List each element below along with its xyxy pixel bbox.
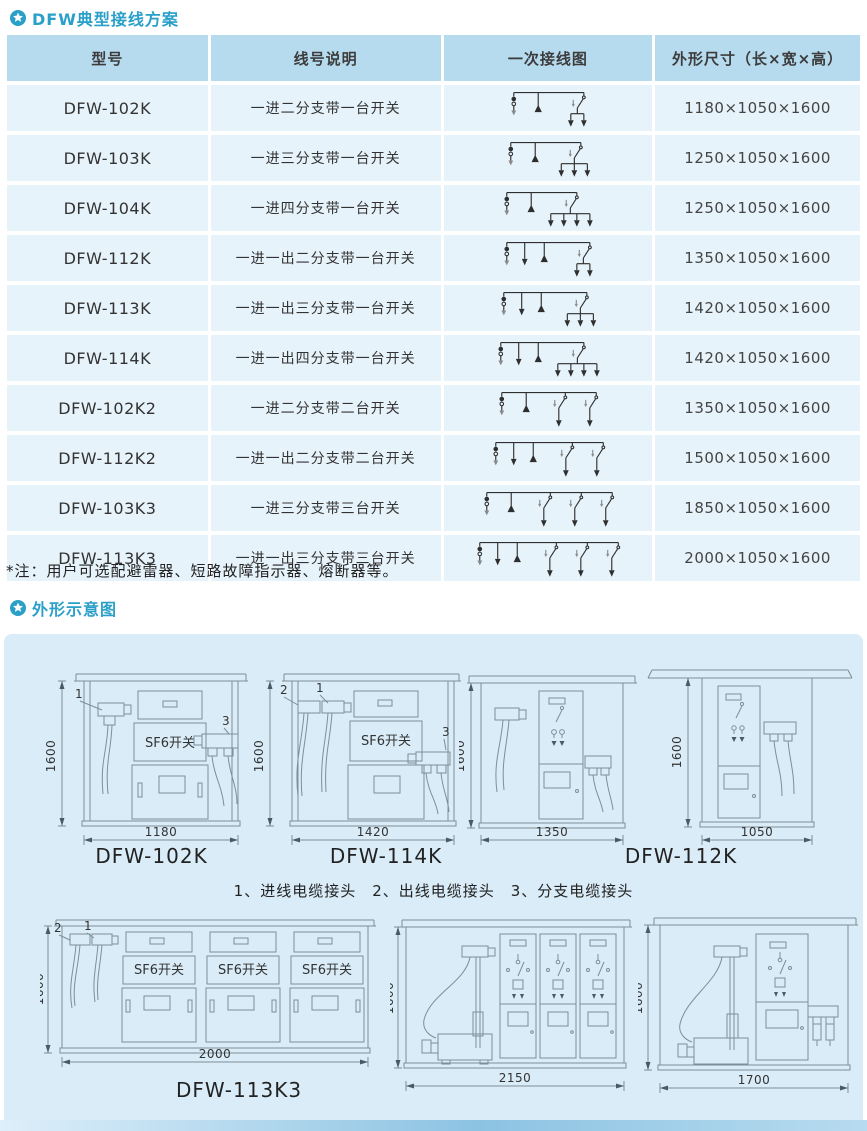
footnote: *注：用户可选配避雷器、短路故障指示器、熔断器等。 bbox=[6, 560, 399, 581]
diagram-cell bbox=[444, 385, 653, 431]
header-description: 线号说明 bbox=[211, 35, 441, 81]
callout-1: 1 bbox=[316, 681, 324, 695]
table-row: DFW-114K一进一出四分支带一台开关1420×1050×1600 bbox=[7, 335, 860, 381]
outline-drawings-panel: SF6开关 1 3 1600 1180 DFW-102K SF6开关 2 1 bbox=[4, 634, 863, 1131]
model-cell: DFW-114K bbox=[7, 335, 208, 381]
section-title-text: 外形示意图 bbox=[32, 596, 117, 620]
model-cell: DFW-112K2 bbox=[7, 435, 208, 481]
diagram-cell bbox=[444, 435, 653, 481]
callout-3: 3 bbox=[442, 725, 450, 739]
header-model: 型号 bbox=[7, 35, 208, 81]
svg-text:SF6开关: SF6开关 bbox=[134, 963, 184, 978]
dimensions-cell: 1500×1050×1600 bbox=[655, 435, 860, 481]
spec-table: 型号 线号说明 一次接线图 外形尺寸（长×宽×高） DFW-102K一进二分支带… bbox=[4, 31, 863, 585]
description-cell: 一进三分支带一台开关 bbox=[211, 135, 441, 181]
callout-3: 3 bbox=[222, 714, 230, 728]
svg-text:SF6开关: SF6开关 bbox=[145, 736, 195, 751]
drawing-caption-dfw-113k3: DFW-113K3 bbox=[114, 1078, 364, 1102]
header-diagram: 一次接线图 bbox=[444, 35, 653, 81]
height-dimension-label: 1600 bbox=[638, 982, 645, 1015]
width-dimension-label: 2150 bbox=[499, 1071, 532, 1085]
width-dimension-label: 1420 bbox=[357, 825, 390, 839]
callout-1: 1 bbox=[75, 687, 83, 701]
section-title-outline: 外形示意图 bbox=[10, 596, 117, 620]
height-dimension-label: 1600 bbox=[46, 740, 58, 773]
model-cell: DFW-113K bbox=[7, 285, 208, 331]
width-dimension-label: 1350 bbox=[536, 825, 569, 839]
model-cell: DFW-103K3 bbox=[7, 485, 208, 531]
table-row: DFW-102K2一进二分支带二台开关1350×1050×1600 bbox=[7, 385, 860, 431]
dimensions-cell: 1420×1050×1600 bbox=[655, 335, 860, 381]
diagram-cell bbox=[444, 535, 653, 581]
cabinet-drawing-dfw-113k3: 2 1 SF6开关 1600 2000 bbox=[40, 904, 385, 1074]
callout-2: 2 bbox=[280, 683, 288, 697]
one-line-diagram bbox=[501, 136, 596, 180]
drawing-caption-dfw-112k: DFW-112K bbox=[596, 844, 766, 868]
one-line-diagram bbox=[504, 86, 592, 130]
section-star-icon bbox=[10, 600, 26, 616]
description-cell: 一进一出四分支带一台开关 bbox=[211, 335, 441, 381]
drawing-caption-dfw-102k: DFW-102K bbox=[54, 844, 249, 868]
footer-decoration-bar bbox=[0, 1120, 867, 1131]
diagram-cell bbox=[444, 85, 653, 131]
model-cell: DFW-102K2 bbox=[7, 385, 208, 431]
height-dimension-label: 1600 bbox=[252, 740, 266, 773]
description-cell: 一进二分支带二台开关 bbox=[211, 385, 441, 431]
cabinet-drawing-dfw-112k-side: 1600 1050 bbox=[644, 644, 856, 849]
dimensions-cell: 1850×1050×1600 bbox=[655, 485, 860, 531]
one-line-diagram bbox=[492, 386, 603, 430]
cabinet-drawing-dfw-114k: SF6开关 2 1 3 1600 1420 bbox=[252, 644, 467, 850]
table-row: DFW-104K一进四分支带一台开关1250×1050×1600 bbox=[7, 185, 860, 231]
section-star-icon bbox=[10, 10, 26, 26]
cabinet-drawing-dfw-102k: SF6开关 1 3 1600 1180 bbox=[46, 644, 256, 850]
model-cell: DFW-102K bbox=[7, 85, 208, 131]
diagram-cell bbox=[444, 185, 653, 231]
cabinet-drawing-interior-2150: 1600 2150 bbox=[390, 898, 640, 1106]
height-dimension-label: 1600 bbox=[40, 973, 46, 1006]
dimensions-cell: 1180×1050×1600 bbox=[655, 85, 860, 131]
one-line-diagram bbox=[470, 536, 625, 580]
header-dimensions: 外形尺寸（长×宽×高） bbox=[655, 35, 860, 81]
one-line-diagram bbox=[497, 186, 598, 230]
dimensions-cell: 1250×1050×1600 bbox=[655, 135, 860, 181]
description-cell: 一进二分支带一台开关 bbox=[211, 85, 441, 131]
table-row: DFW-112K2一进一出二分支带二台开关1500×1050×1600 bbox=[7, 435, 860, 481]
description-cell: 一进三分支带三台开关 bbox=[211, 485, 441, 531]
height-dimension-label: 1600 bbox=[459, 740, 467, 773]
description-cell: 一进四分支带一台开关 bbox=[211, 185, 441, 231]
drawing-caption-dfw-114k: DFW-114K bbox=[296, 844, 476, 868]
table-row: DFW-112K一进一出二分支带一台开关1350×1050×1600 bbox=[7, 235, 860, 281]
diagram-cell bbox=[444, 335, 653, 381]
cabinet-drawing-dfw-112k-front: 1600 1350 bbox=[459, 646, 644, 851]
table-row: DFW-103K3一进三分支带三台开关1850×1050×1600 bbox=[7, 485, 860, 531]
width-dimension-label: 1180 bbox=[145, 825, 178, 839]
table-row: DFW-113K一进一出三分支带一台开关1420×1050×1600 bbox=[7, 285, 860, 331]
diagram-cell bbox=[444, 135, 653, 181]
callout-2: 2 bbox=[54, 921, 62, 935]
dimensions-cell: 1350×1050×1600 bbox=[655, 385, 860, 431]
height-dimension-label: 1600 bbox=[670, 736, 684, 769]
model-cell: DFW-103K bbox=[7, 135, 208, 181]
table-row: DFW-103K一进三分支带一台开关1250×1050×1600 bbox=[7, 135, 860, 181]
dimensions-cell: 1420×1050×1600 bbox=[655, 285, 860, 331]
callout-1: 1 bbox=[84, 919, 92, 933]
width-dimension-label: 1050 bbox=[741, 825, 774, 839]
dimensions-cell: 1250×1050×1600 bbox=[655, 185, 860, 231]
model-cell: DFW-112K bbox=[7, 235, 208, 281]
one-line-diagram bbox=[494, 286, 602, 330]
description-cell: 一进一出二分支带一台开关 bbox=[211, 235, 441, 281]
section-title-wiring: DFW典型接线方案 bbox=[10, 6, 179, 30]
spec-table-body: DFW-102K一进二分支带一台开关1180×1050×1600DFW-103K… bbox=[7, 85, 860, 581]
diagram-cell bbox=[444, 485, 653, 531]
table-row: DFW-102K一进二分支带一台开关1180×1050×1600 bbox=[7, 85, 860, 131]
description-cell: 一进一出二分支带二台开关 bbox=[211, 435, 441, 481]
diagram-cell bbox=[444, 235, 653, 281]
section-title-text: DFW典型接线方案 bbox=[32, 6, 179, 30]
svg-text:SF6开关: SF6开关 bbox=[361, 734, 411, 749]
one-line-diagram bbox=[477, 486, 619, 530]
dimensions-cell: 2000×1050×1600 bbox=[655, 535, 860, 581]
dimensions-cell: 1350×1050×1600 bbox=[655, 235, 860, 281]
table-header-row: 型号 线号说明 一次接线图 外形尺寸（长×宽×高） bbox=[7, 35, 860, 81]
one-line-diagram bbox=[491, 336, 605, 380]
diagram-cell bbox=[444, 285, 653, 331]
model-cell: DFW-104K bbox=[7, 185, 208, 231]
height-dimension-label: 1600 bbox=[390, 982, 396, 1015]
cabinet-drawing-interior-1700: 1600 1700 bbox=[638, 898, 866, 1106]
width-dimension-label: 2000 bbox=[199, 1047, 232, 1061]
width-dimension-label: 1700 bbox=[738, 1073, 771, 1087]
description-cell: 一进一出三分支带一台开关 bbox=[211, 285, 441, 331]
one-line-diagram bbox=[497, 236, 598, 280]
one-line-diagram bbox=[486, 436, 610, 480]
